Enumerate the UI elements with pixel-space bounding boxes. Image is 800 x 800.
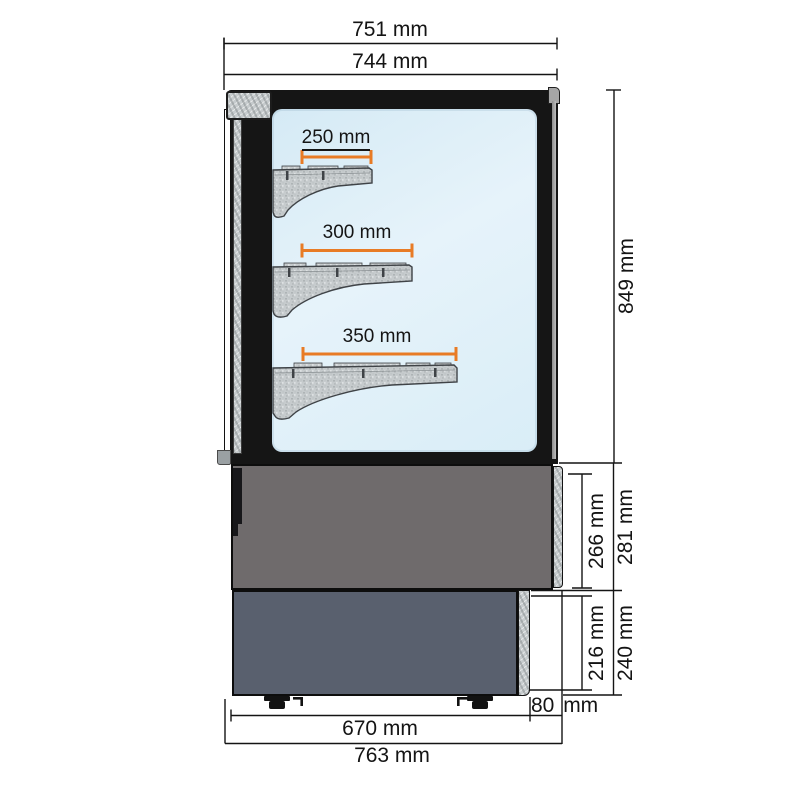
dim-label-base-outer-height: 240 mm [614, 583, 638, 703]
dim-text-751: 751 mm [352, 18, 428, 41]
dim-label-mid-outer-height: 281 mm [614, 467, 638, 587]
technical-drawing-canvas: 751 mm 744 mm 250 mm 300 mm 350 mm 849 m… [0, 0, 800, 800]
shelf-bracket-middle [272, 261, 416, 323]
shelf-bracket-top [272, 164, 376, 224]
dim-label-body-width: 744 mm [330, 51, 450, 73]
dim-label-overall-depth: 763 mm [332, 745, 452, 767]
dim-label-overall-width: 751 mm [330, 19, 450, 41]
mid-panel-left-notch [233, 468, 242, 524]
rear-panel [224, 109, 231, 460]
shelf-bracket-bottom [272, 361, 460, 425]
dim-label-base-inner-height: 216 mm [585, 583, 609, 703]
dim-text-266: 266 mm [585, 493, 608, 569]
dim-label-rear-offset: 80 mm [531, 694, 621, 718]
dim-label-upper-height: 849 mm [615, 216, 639, 336]
base-right-trim [518, 590, 530, 696]
dim-label-shelf-350: 350 mm [317, 327, 437, 347]
dim-text-670: 670 mm [342, 717, 418, 740]
rear-inner-metal-strip [233, 116, 242, 454]
dim-text-744: 744 mm [352, 50, 428, 73]
top-left-hinge-block [226, 91, 272, 120]
dim-text-849: 849 mm [615, 238, 638, 314]
right-side-trim [552, 101, 556, 459]
mid-panel [231, 464, 553, 590]
dim-text-350: 350 mm [343, 326, 412, 347]
dim-text-80: 80 mm [531, 694, 598, 717]
rear-panel-foot [217, 450, 231, 465]
mid-panel-left-notch-step [233, 524, 238, 536]
dim-text-281: 281 mm [614, 489, 637, 565]
dim-text-250: 250 mm [302, 127, 371, 151]
dim-label-base-depth: 670 mm [320, 718, 440, 740]
left-foot [269, 701, 285, 709]
dim-text-216: 216 mm [585, 605, 608, 681]
dim-text-240: 240 mm [614, 605, 637, 681]
dim-text-763: 763 mm [354, 744, 430, 767]
base-panel [232, 590, 518, 696]
mid-panel-right-trim [553, 466, 563, 588]
dim-label-shelf-250: 250 mm [276, 128, 396, 148]
dim-text-300: 300 mm [323, 222, 392, 243]
right-foot [472, 701, 488, 709]
dim-label-mid-inner-height: 266 mm [585, 471, 609, 591]
dim-label-shelf-300: 300 mm [297, 223, 417, 243]
